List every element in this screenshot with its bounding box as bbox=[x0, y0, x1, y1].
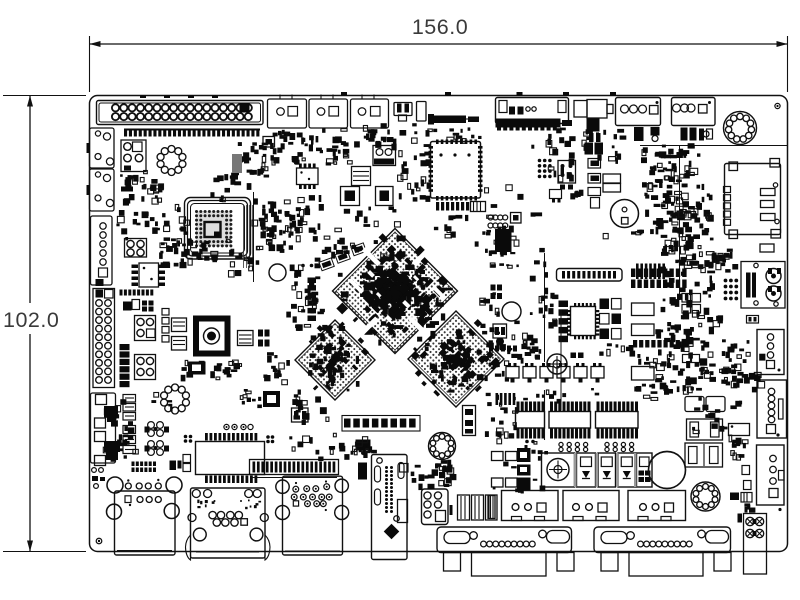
svg-text:102.0: 102.0 bbox=[3, 308, 59, 332]
svg-text:156.0: 156.0 bbox=[412, 15, 468, 39]
